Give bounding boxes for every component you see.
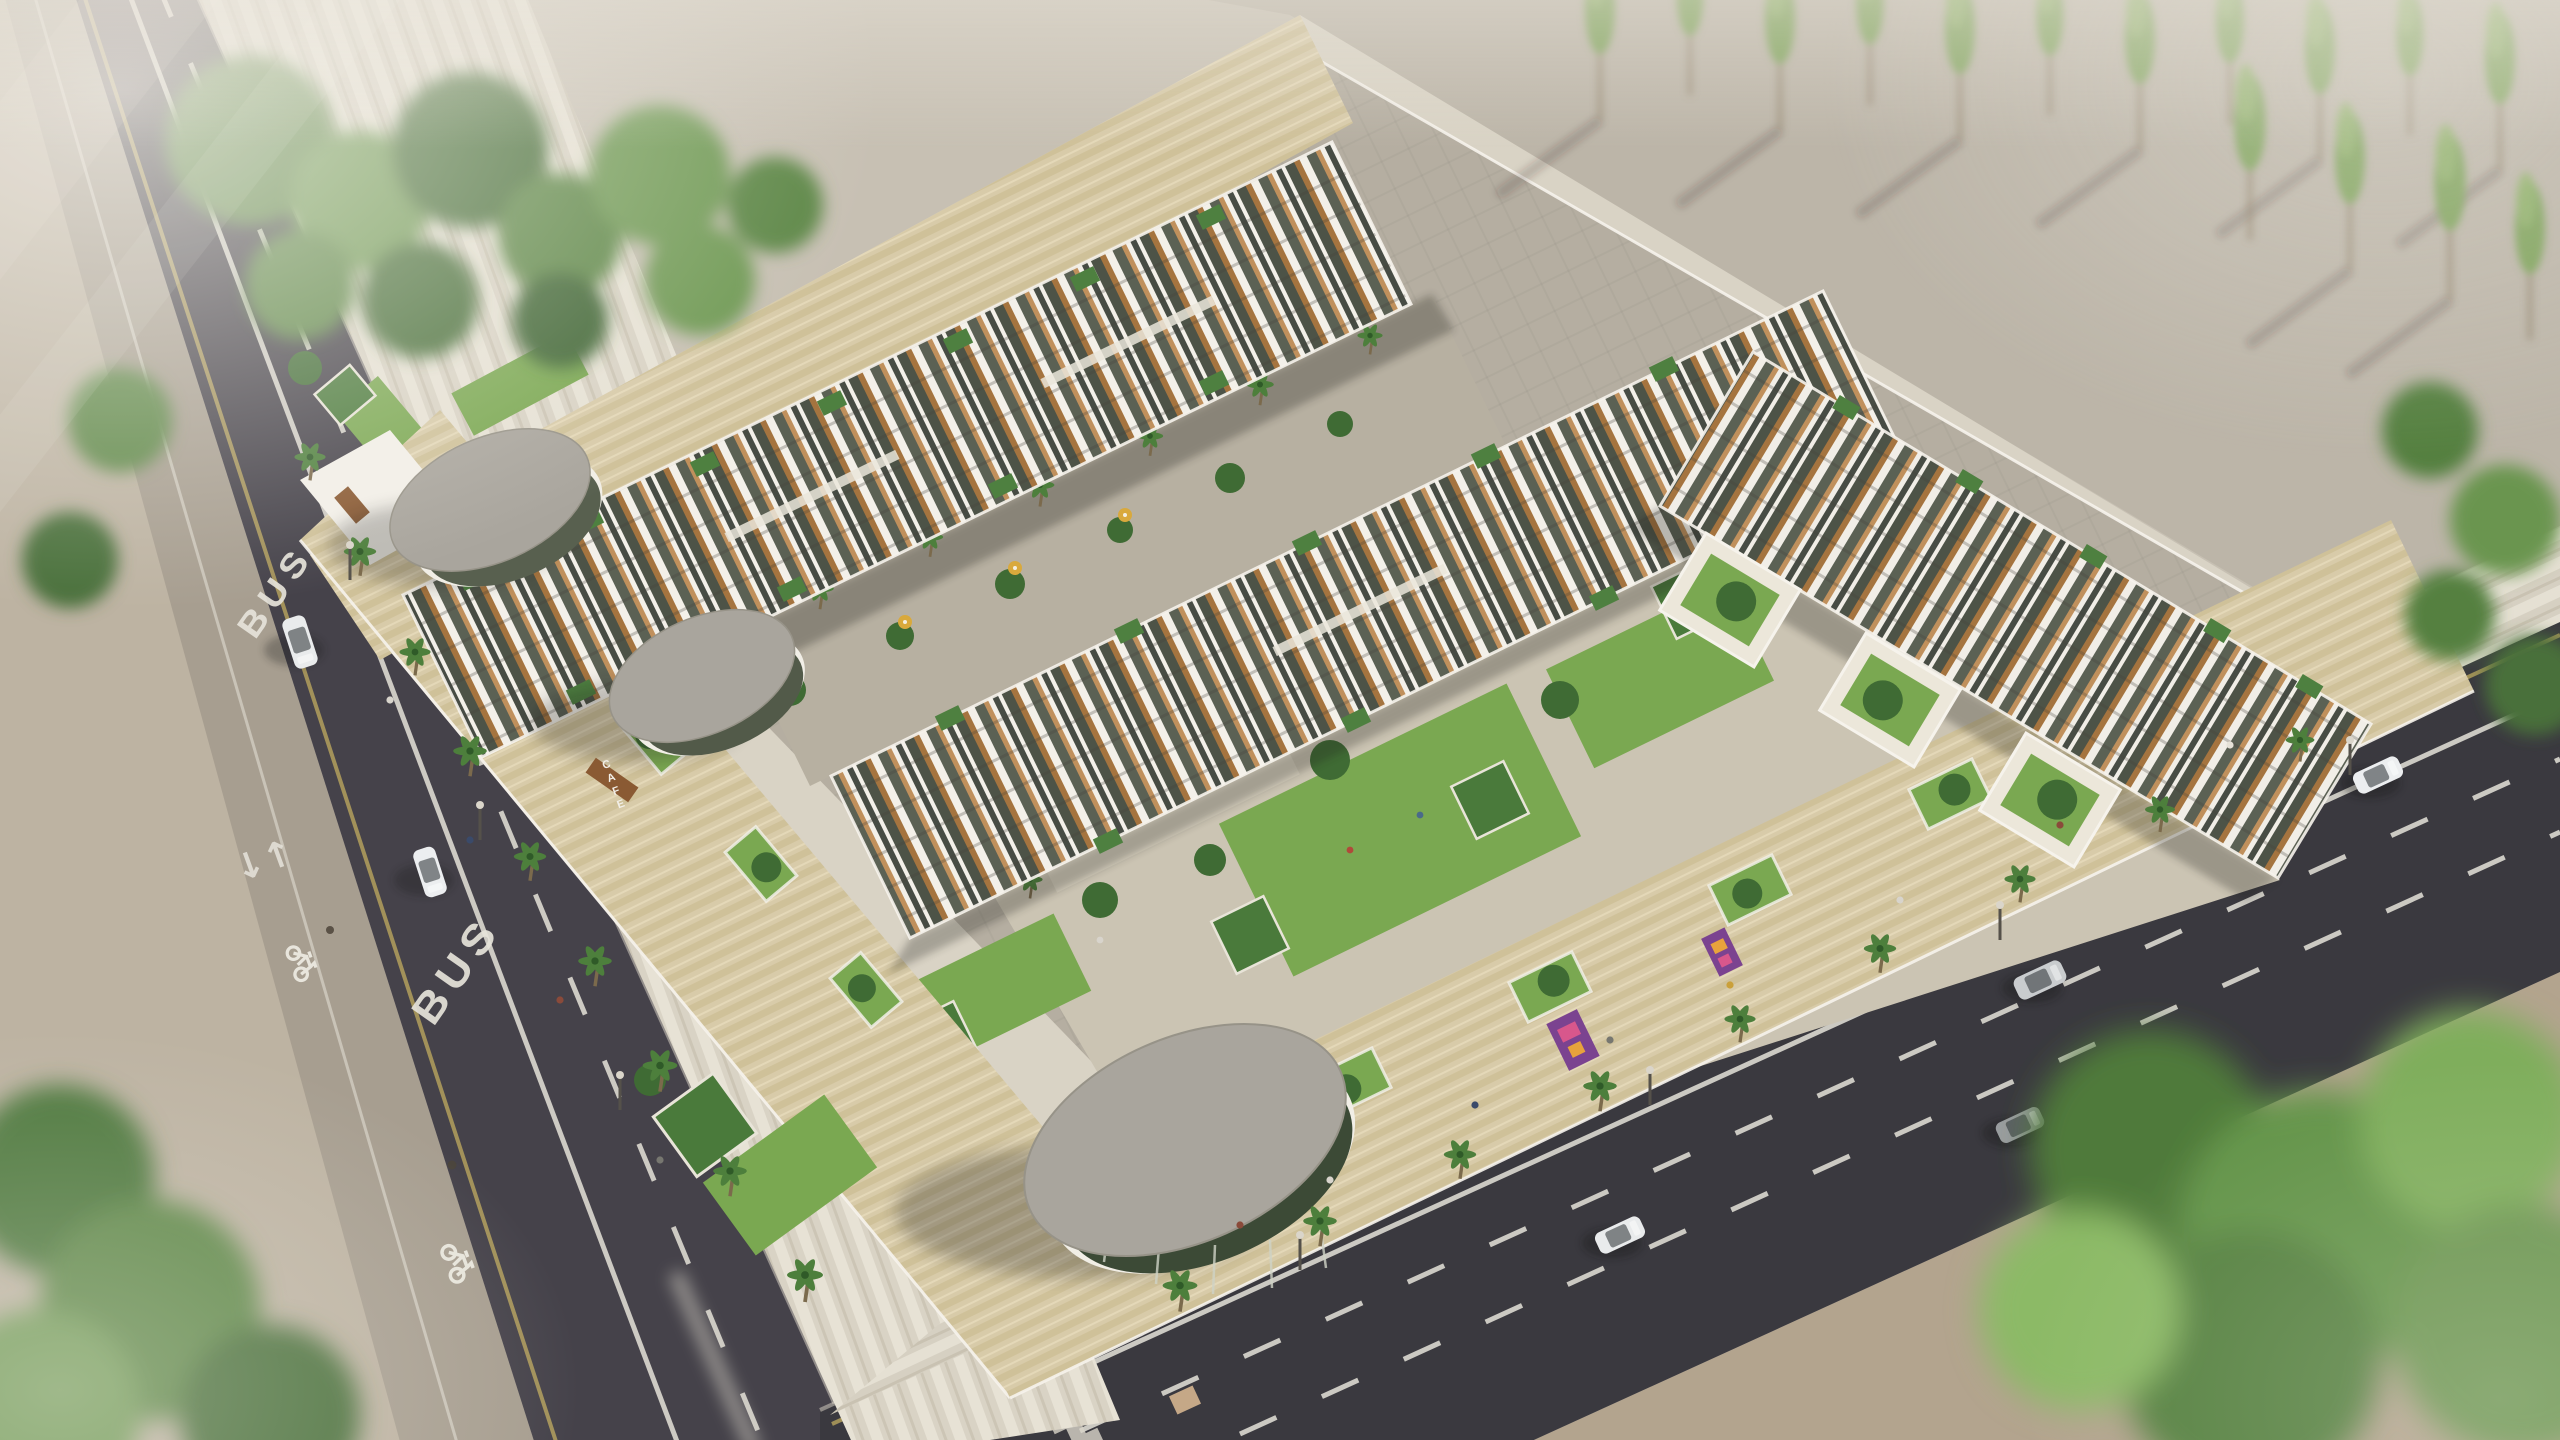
- cyclist: [326, 926, 334, 934]
- pedestrian: [2056, 821, 2063, 828]
- pedestrian: [1326, 1176, 1333, 1183]
- pedestrian: [2226, 741, 2233, 748]
- pedestrian: [1726, 981, 1733, 988]
- tree-canopy: [2450, 465, 2560, 575]
- pedestrian: [1471, 1101, 1478, 1108]
- haze-top-band: [0, 0, 2560, 150]
- pedestrian: [1097, 937, 1104, 944]
- pedestrian: [1236, 1221, 1243, 1228]
- tree-canopy: [2405, 570, 2495, 660]
- pedestrian: [1606, 1036, 1613, 1043]
- pedestrian: [466, 836, 473, 843]
- pedestrian: [1347, 847, 1354, 854]
- aerial-render-scene: BUS BUS ↓↑ BUS: [0, 0, 2560, 1440]
- pedestrian: [386, 696, 393, 703]
- scene-canvas: BUS BUS ↓↑ BUS: [0, 0, 2560, 1440]
- pedestrian: [1896, 896, 1903, 903]
- pedestrian: [556, 996, 563, 1003]
- pedestrian: [1417, 812, 1424, 819]
- pedestrian: [656, 1156, 663, 1163]
